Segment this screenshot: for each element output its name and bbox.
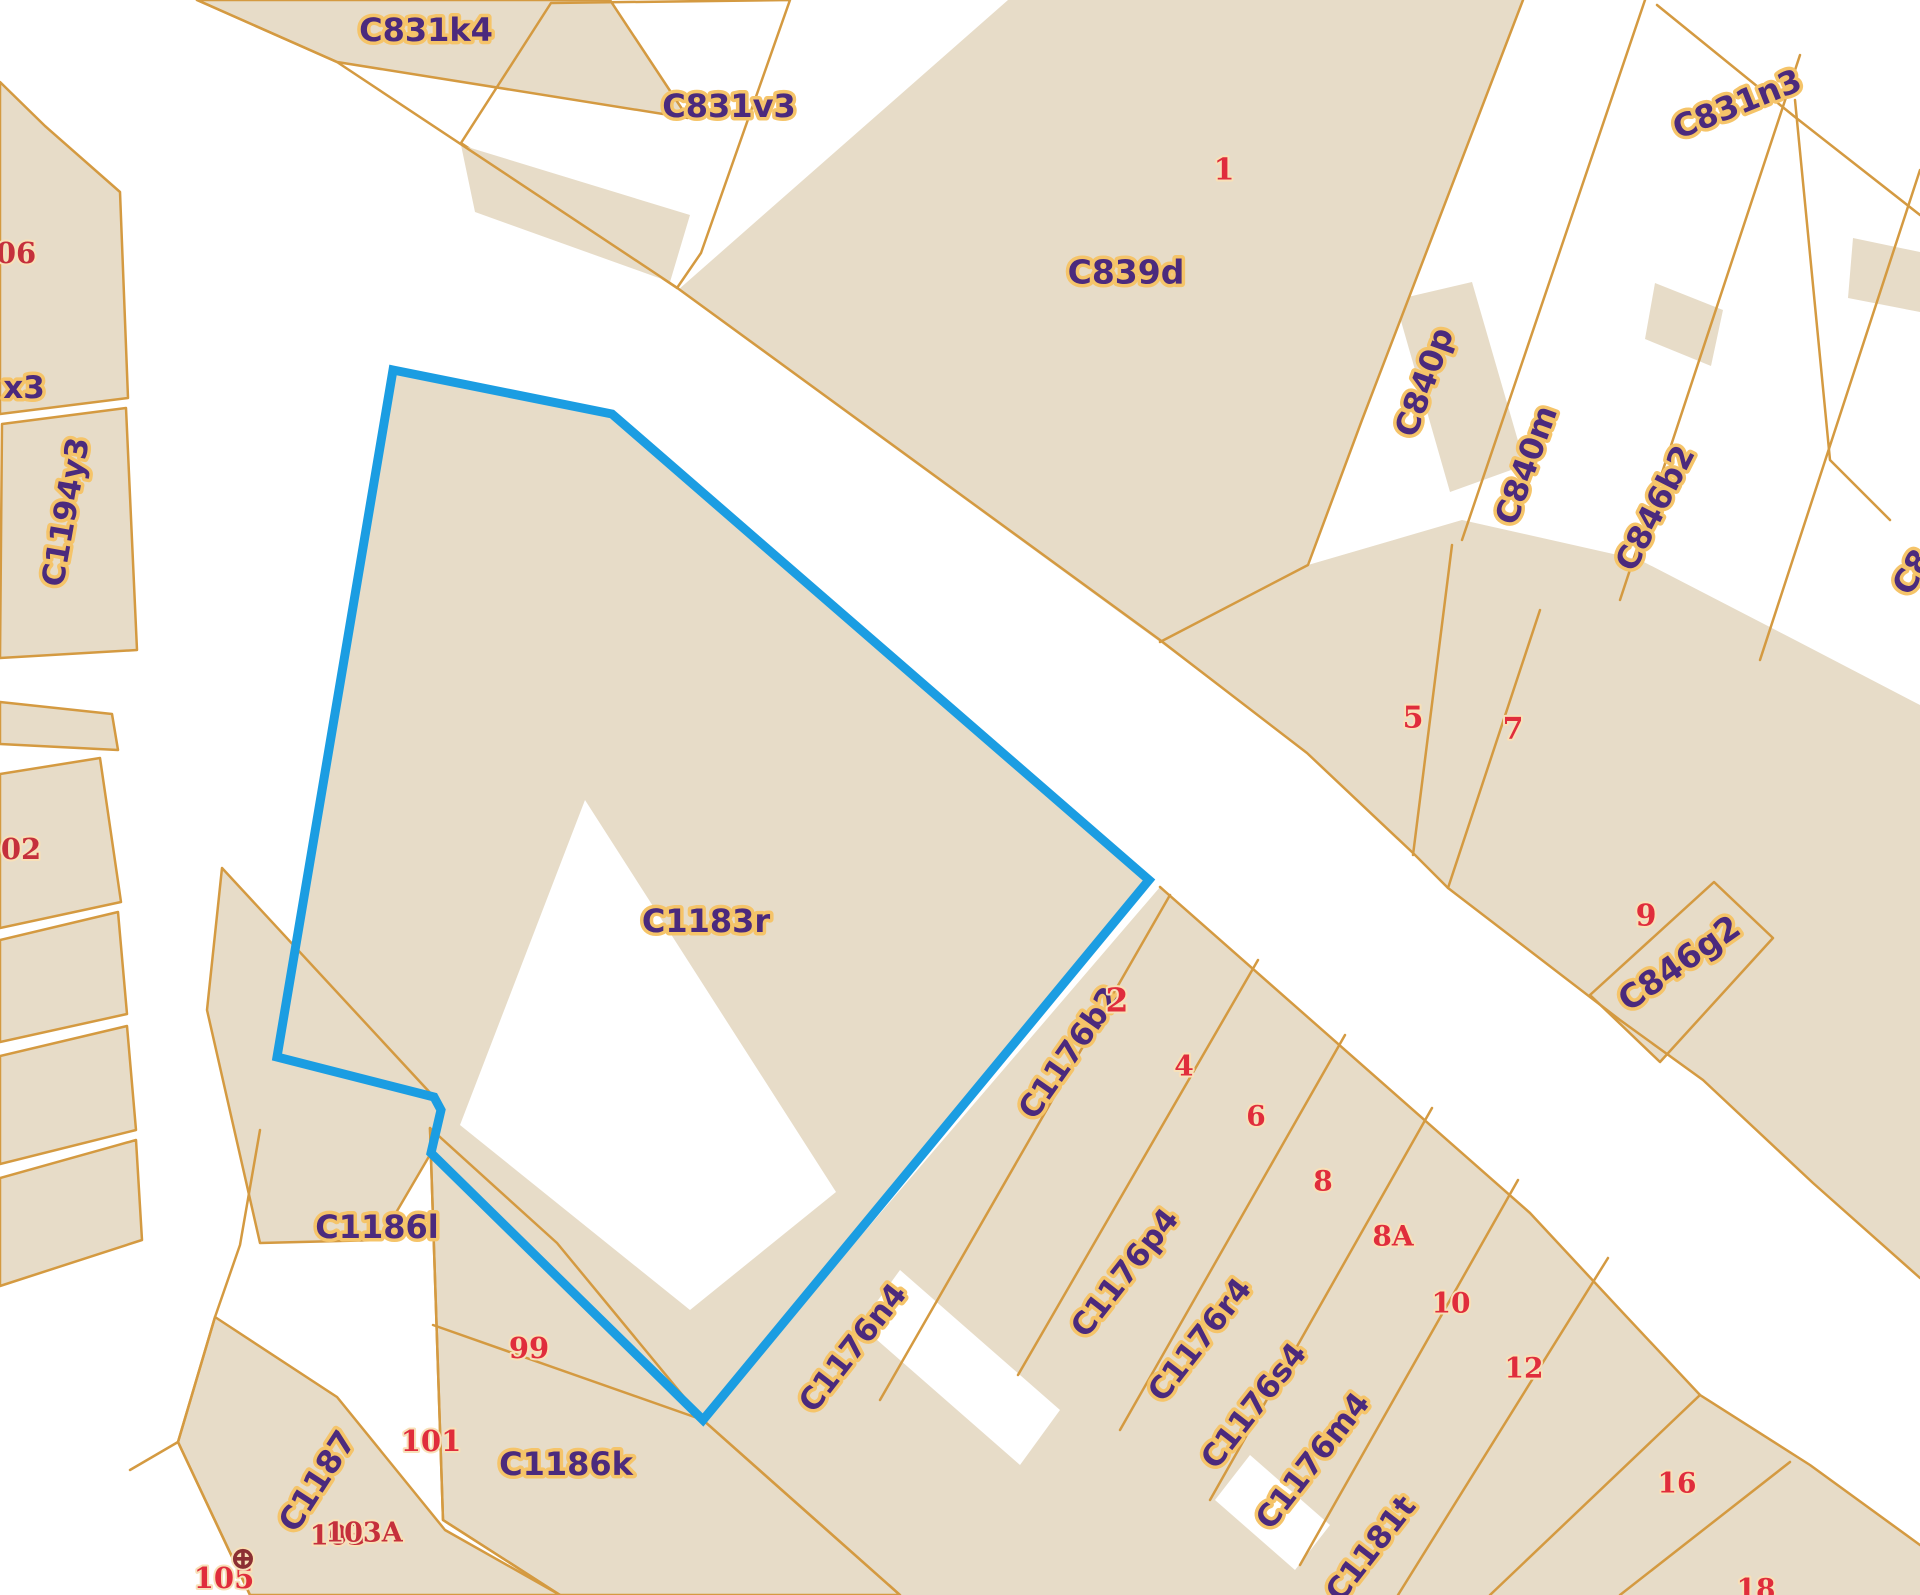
house-number-12: 12: [1505, 1352, 1544, 1385]
parcel-label-C1186l: C1186l: [315, 1208, 439, 1246]
house-number-7: 7: [1503, 712, 1524, 747]
house-number-6: 6: [1246, 1100, 1265, 1133]
parcel-label-C831k4: C831k4: [359, 11, 493, 49]
parcel-label-x3: x3: [3, 370, 45, 406]
house-number-99: 99: [509, 1331, 549, 1365]
parcel-label-C839d: C839d: [1068, 253, 1185, 292]
house-number-06: 06: [0, 236, 36, 270]
house-number-8A: 8A: [1372, 1220, 1414, 1253]
parcel-label-C1183r: C1183r: [642, 902, 771, 940]
house-number-1: 1: [1214, 153, 1235, 188]
map-viewport[interactable]: C831k4C831v3C839dC831n3C840pC840mC846b2C…: [0, 0, 1920, 1595]
house-number-9: 9: [1636, 899, 1657, 934]
house-number-8: 8: [1313, 1165, 1332, 1198]
house-number-101: 101: [401, 1424, 462, 1458]
house-number-5: 5: [1403, 701, 1424, 736]
house-number-18: 18: [1737, 1573, 1776, 1595]
house-number-103A: 103A: [325, 1518, 403, 1549]
cadastral-map[interactable]: C831k4C831v3C839dC831n3C840pC840mC846b2C…: [0, 0, 1920, 1595]
house-number-02: 02: [1, 832, 41, 866]
house-number-2: 2: [1106, 981, 1129, 1020]
parcel-label-C1186k: C1186k: [499, 1445, 634, 1483]
house-number-16: 16: [1658, 1467, 1697, 1500]
parcel-label-C831v3: C831v3: [662, 87, 795, 125]
house-number-10: 10: [1432, 1287, 1471, 1320]
house-number-4: 4: [1174, 1050, 1193, 1083]
house-number-⊕: ⊕: [230, 1539, 257, 1577]
